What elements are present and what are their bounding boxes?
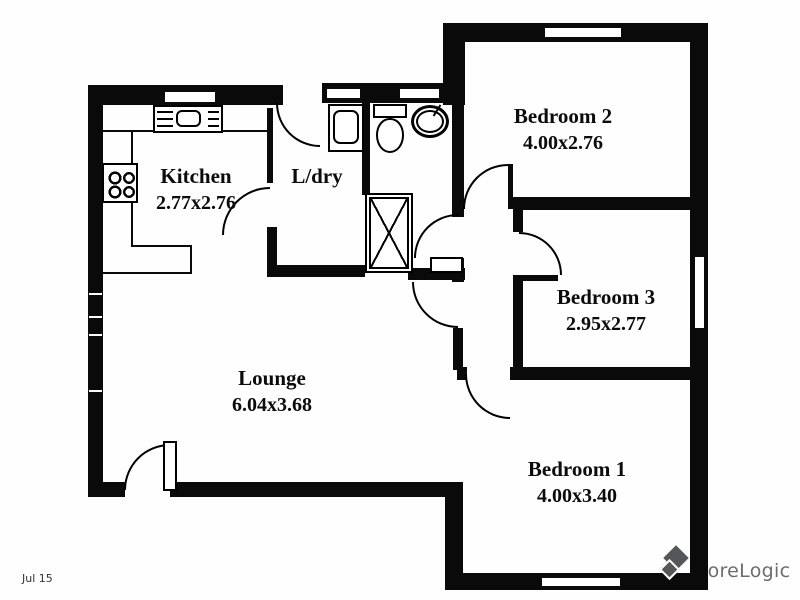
wall (452, 103, 464, 217)
wall (453, 328, 463, 370)
room-label-bedroom-1: Bedroom 14.00x3.40 (528, 456, 626, 510)
room-name: Bedroom 1 (528, 456, 626, 483)
hall-cupboard (430, 257, 463, 273)
door-leaf (508, 164, 513, 209)
wall-tick (89, 316, 102, 318)
room-name: L/dry (291, 163, 342, 190)
room-label-lounge: Lounge6.04x3.68 (232, 365, 312, 419)
floor-plan: Kitchen2.77x2.76L/dryLounge6.04x3.68Bedr… (0, 0, 800, 600)
window (398, 87, 441, 100)
wall-tick (89, 390, 102, 392)
wall (510, 367, 708, 380)
wall (445, 482, 463, 577)
room-label-l-dry: L/dry (291, 163, 342, 190)
bedroom1-door-arc (465, 374, 510, 419)
bathroom-door-arc (414, 214, 458, 258)
room-name: Bedroom 3 (557, 284, 655, 311)
kitchen-sink (153, 105, 223, 133)
room-label-bedroom-3: Bedroom 32.95x2.77 (557, 284, 655, 338)
kitchen-counter-line (131, 130, 133, 165)
room-name: Lounge (232, 365, 312, 392)
window (163, 90, 217, 104)
plan-canvas: Kitchen2.77x2.76L/dryLounge6.04x3.68Bedr… (0, 0, 800, 600)
bathroom-basin (411, 105, 449, 138)
window (540, 576, 622, 588)
hall-door-arc (412, 282, 458, 328)
window (693, 255, 706, 330)
room-dimensions: 2.95x2.77 (557, 311, 655, 338)
shower (365, 193, 413, 273)
laundry-door-arc (276, 103, 320, 147)
kitchen-counter-line (103, 272, 192, 274)
wall (513, 275, 523, 367)
wall (267, 265, 365, 277)
room-dimensions: 2.77x2.76 (156, 190, 236, 217)
room-label-bedroom-2: Bedroom 24.00x2.76 (514, 103, 612, 157)
room-name: Kitchen (156, 163, 236, 190)
room-label-kitchen: Kitchen2.77x2.76 (156, 163, 236, 217)
room-dimensions: 6.04x3.68 (232, 392, 312, 419)
room-dimensions: 4.00x2.76 (514, 130, 612, 157)
toilet (372, 104, 408, 154)
cooktop (102, 163, 138, 203)
wall (513, 197, 708, 210)
wall (88, 482, 125, 497)
bedroom2-door-arc (463, 164, 508, 209)
wall (88, 85, 103, 497)
room-name: Bedroom 2 (514, 103, 612, 130)
window (543, 26, 623, 39)
wall-tick (89, 334, 102, 336)
laundry-tub (328, 104, 364, 152)
kitchen-counter-line (190, 245, 192, 274)
room-dimensions: 4.00x3.40 (528, 483, 626, 510)
door-leaf (519, 275, 558, 281)
wall-tick (89, 293, 102, 295)
bedroom3-door-arc (519, 232, 562, 275)
wall (170, 482, 463, 497)
kitchen-counter-line (131, 200, 133, 247)
kitchen-counter-line (131, 245, 192, 247)
wall (267, 108, 273, 183)
wall (513, 197, 523, 232)
entry-door-leaf (163, 441, 177, 491)
window (325, 87, 362, 100)
date-label: Jul 15 (22, 572, 53, 585)
